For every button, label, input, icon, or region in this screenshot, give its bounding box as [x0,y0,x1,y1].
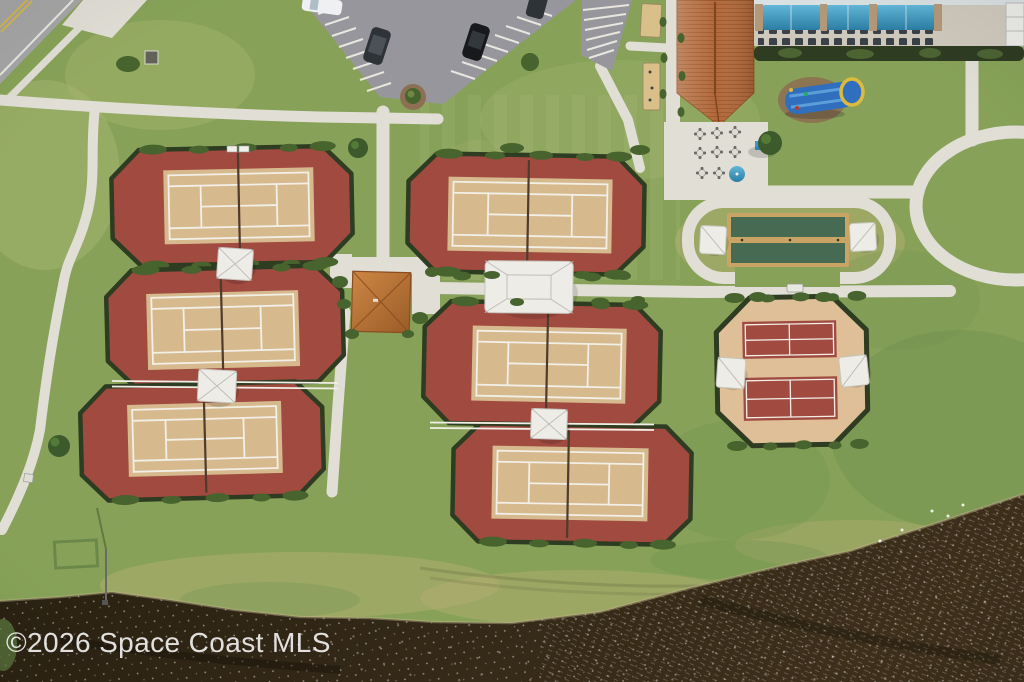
vignette [0,0,1024,682]
watermark: ©2026 Space Coast MLS [6,627,331,659]
aerial-photo-canvas [0,0,1024,682]
aerial-photo: ©2026 Space Coast MLS [0,0,1024,682]
